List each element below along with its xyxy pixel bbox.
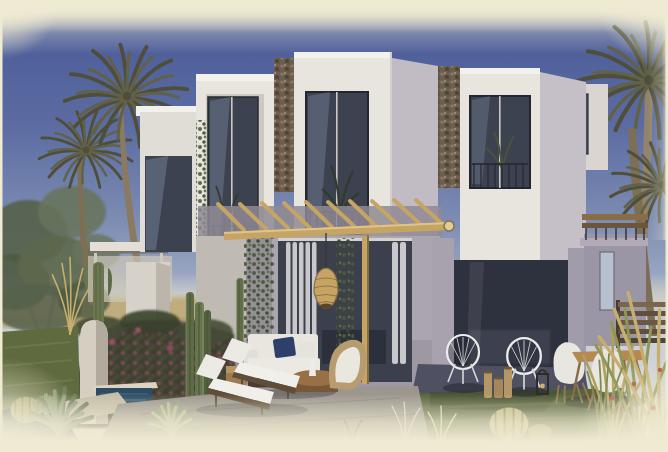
right-tower-window (470, 96, 530, 188)
stone-cladding-strip-left (274, 58, 296, 192)
villa-exterior-render (0, 0, 668, 452)
villa-left-lower-volume (136, 106, 200, 252)
navy-throw-pillow (273, 337, 296, 359)
vine-strip (336, 238, 354, 350)
stone-cladding-strip-center (438, 66, 460, 188)
